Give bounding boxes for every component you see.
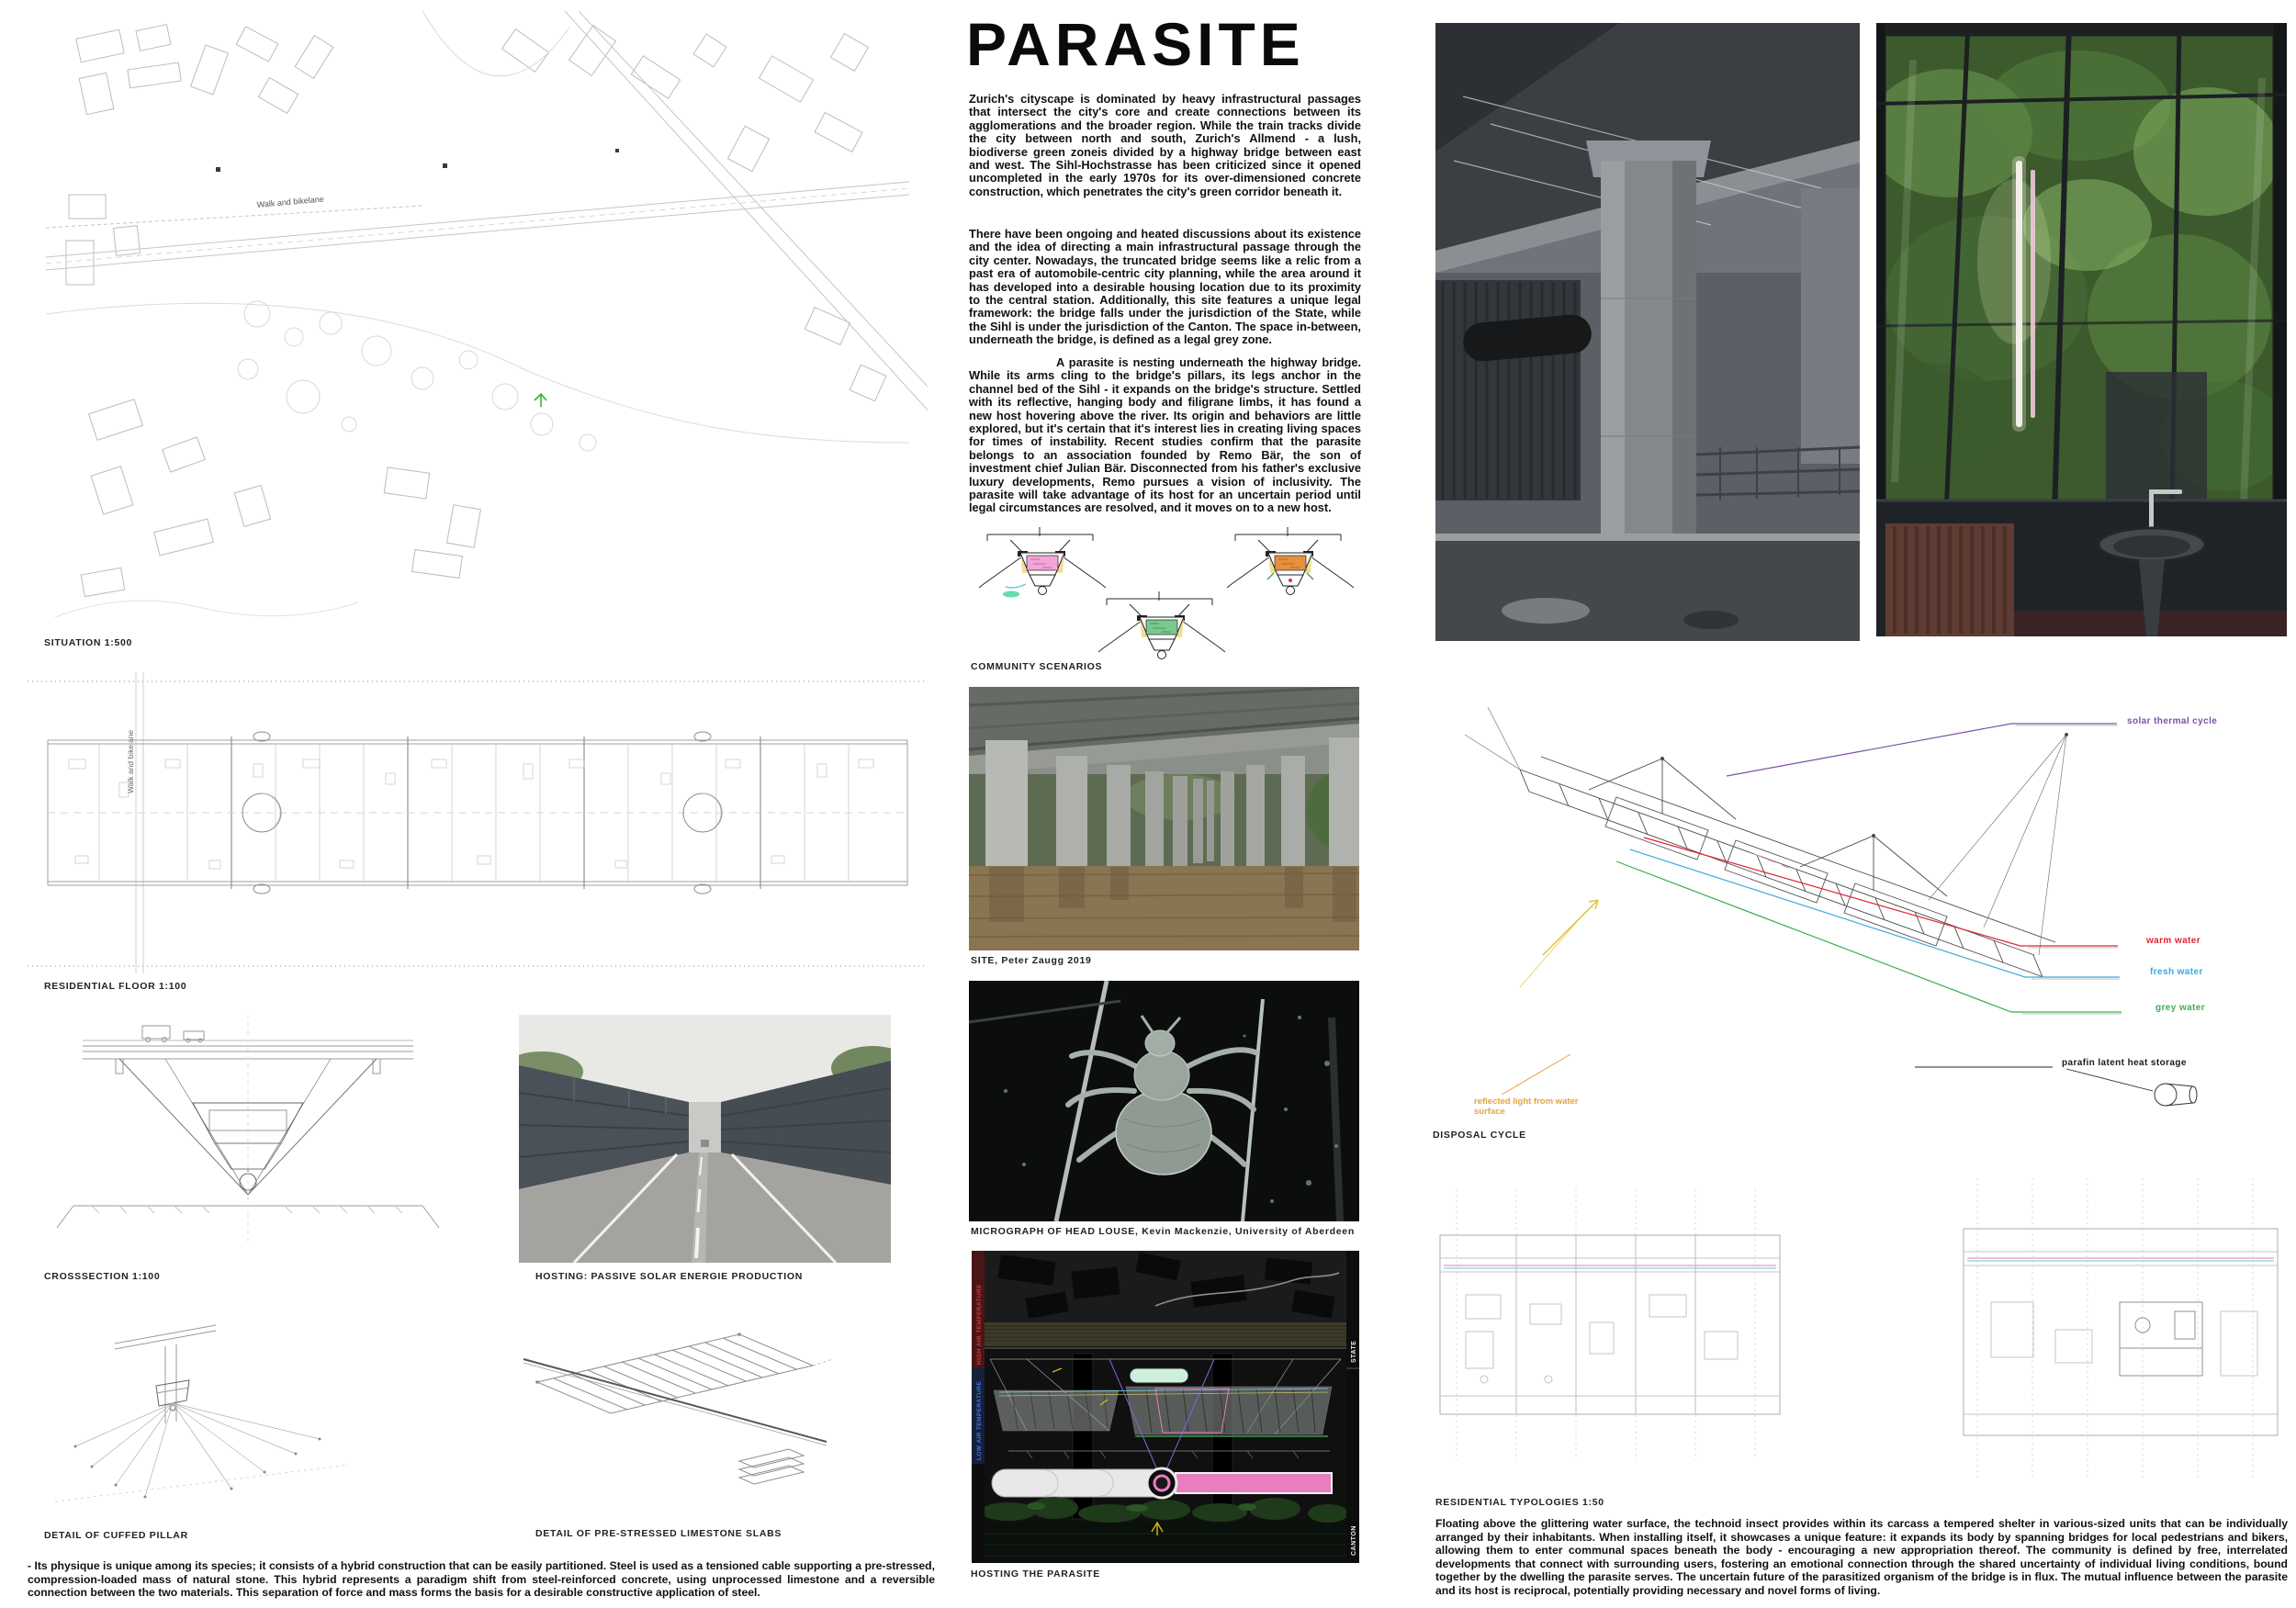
left-footnote-text: - Its physique is unique among its speci… <box>28 1559 935 1600</box>
axon-cycle-lines <box>1502 724 2122 1095</box>
parasite-slabs <box>994 1387 1332 1436</box>
typo-left-grid <box>1457 1189 1755 1460</box>
map-green-marker <box>535 394 546 407</box>
grey-water-label: grey water <box>2155 1003 2205 1013</box>
crosssection-caption: CROSSSECTION 1:100 <box>44 1271 160 1282</box>
intro-paragraph-1: Zurich's cityscape is dominated by heavy… <box>969 93 1361 198</box>
hosting-parasite-caption: HOSTING THE PARASITE <box>971 1569 1100 1580</box>
community-caption: COMMUNITY SCENARIOS <box>971 661 1102 672</box>
section-ground <box>57 1015 439 1244</box>
axon-structure <box>1465 707 2068 977</box>
parafin-label: parafin latent heat storage <box>2062 1058 2187 1068</box>
reflected-light-label: reflected light from water surface <box>1474 1096 1603 1117</box>
sink-bowl <box>2113 535 2190 557</box>
map-buildings <box>66 25 886 597</box>
scenario-module-green <box>1098 591 1225 659</box>
map-markers <box>216 149 619 172</box>
faucet-spout <box>2149 489 2182 494</box>
walk-bikelane-label-vertical: Walk and bikelane <box>126 730 135 793</box>
detail-slabs-caption: DETAIL OF PRE-STRESSED LIMESTONE SLABS <box>535 1528 782 1539</box>
slab-sketch <box>523 1333 831 1484</box>
typologies-plan-left <box>1429 1185 1792 1469</box>
typologies-caption: RESIDENTIAL TYPOLOGIES 1:50 <box>1435 1497 1604 1508</box>
mint-tank <box>1130 1368 1188 1383</box>
axon-leaders <box>1915 725 2153 1091</box>
poster-title: PARASITE <box>966 9 1370 79</box>
canton-label: CANTON <box>1351 1525 1357 1556</box>
warm-water-label: warm water <box>2146 936 2200 946</box>
walk-lane-lines <box>136 672 143 973</box>
site-caption: SITE, Peter Zaugg 2019 <box>971 955 1092 966</box>
light-tube-1 <box>2016 161 2022 427</box>
interior-window-photo <box>1876 23 2287 636</box>
residential-floor-drawing: Walk and bikelane <box>28 672 928 973</box>
plan-boundaries <box>28 681 928 966</box>
situation-caption: SITUATION 1:500 <box>44 637 132 648</box>
detail-pillar-drawing <box>28 1309 377 1515</box>
disposal-cycle-drawing <box>1433 680 2287 1116</box>
presentation-board: Walk and bikelane SITUATION 1:500 Walk a… <box>0 0 2296 1608</box>
walk-bikelane-label: Walk and bikelane <box>256 195 324 209</box>
photoA-bottom-edge <box>1435 534 1860 541</box>
community-scenarios-drawing <box>974 525 1359 661</box>
right-band <box>1346 1251 1359 1563</box>
high-temp-label: HIGH AIR TEMPERATURE <box>976 1284 983 1365</box>
bridge-underside-photo <box>1435 23 1860 641</box>
fresh-water-label: fresh water <box>2150 967 2203 977</box>
intro-paragraph-3: A parasite is nesting underneath the hig… <box>969 356 1361 515</box>
pillar-sketch <box>55 1325 349 1501</box>
hosting-photo-caption: HOSTING: PASSIVE SOLAR ENERGIE PRODUCTIO… <box>535 1271 803 1282</box>
scenario-module-pink <box>979 527 1106 598</box>
left-band-rest <box>972 1464 985 1563</box>
residential-caption: RESIDENTIAL FLOOR 1:100 <box>44 981 186 992</box>
detail-slabs-drawing <box>510 1318 831 1515</box>
low-temp-label: LOW AIR TEMPERATURE <box>976 1380 983 1460</box>
situation-map-drawing: Walk and bikelane <box>28 11 928 634</box>
photoA-dark-disc <box>1683 611 1739 629</box>
hosting-parasite-diagram: HIGH AIR TEMPERATURE LOW AIR TEMPERATURE… <box>972 1251 1359 1563</box>
hub-core <box>1154 1476 1169 1490</box>
right-footnote-text: Floating above the glittering water surf… <box>1435 1517 2288 1598</box>
heat-storage-cylinder <box>2155 1084 2197 1106</box>
water-band <box>985 1523 1346 1563</box>
crosssection-drawing <box>55 1015 441 1254</box>
typologies-plan-right <box>1954 1174 2287 1490</box>
typo-left-plan <box>1440 1235 1780 1414</box>
micrograph-photo <box>969 981 1359 1221</box>
solar-thermal-label: solar thermal cycle <box>2127 716 2217 726</box>
intro-paragraph-2: There have been ongoing and heated discu… <box>969 228 1361 347</box>
micrograph-caption: MICROGRAPH OF HEAD LOUSE, Kevin Mackenzi… <box>971 1226 1355 1237</box>
photoA-light-strip <box>1801 188 1860 464</box>
photoA-disc <box>1502 598 1590 624</box>
state-label: STATE <box>1351 1341 1357 1363</box>
distant-car <box>701 1140 709 1147</box>
site-photo <box>969 687 1359 950</box>
photoB-panel <box>2106 372 2207 500</box>
light-tube-2 <box>2031 170 2035 418</box>
highway-photo <box>519 1015 891 1263</box>
plan-furniture <box>69 759 873 869</box>
typo-right-plan <box>1964 1229 2278 1435</box>
pink-tube <box>1176 1473 1332 1493</box>
photoA-bottom <box>1435 539 1860 641</box>
scenario-module-orange <box>1227 527 1354 595</box>
plan-cores <box>242 732 722 894</box>
detail-pillar-caption: DETAIL OF CUFFED PILLAR <box>44 1530 188 1541</box>
map-trees <box>238 301 596 451</box>
disposal-caption: DISPOSAL CYCLE <box>1433 1130 1526 1141</box>
